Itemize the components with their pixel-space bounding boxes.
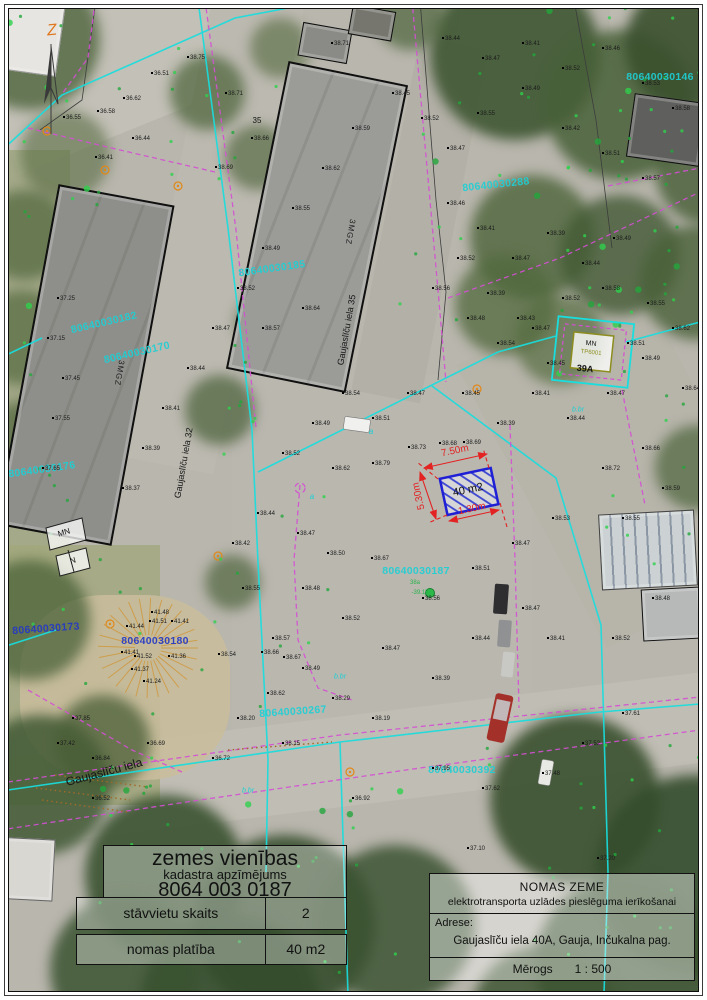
row-label-lease-area: nomas platība: [77, 941, 265, 957]
table-row: stāvvietu skaits 2: [76, 897, 347, 930]
scale-value: 1 : 500: [575, 962, 612, 976]
page-margin: [0, 991, 707, 1000]
lease-info-table: NOMAS ZEME elektrotransporta uzlādes pie…: [429, 873, 695, 981]
survey-lines: [40, 0, 612, 380]
tree-symbol: [426, 589, 435, 598]
row-value-lease-area: 40 m2: [265, 935, 346, 964]
tree-crown-sunburst: [98, 598, 198, 698]
row-value-parking-count: 2: [265, 898, 346, 929]
transformer-station: [552, 316, 634, 388]
address-label: Adrese:: [435, 917, 689, 929]
dark-van: [493, 584, 509, 615]
white-car: [538, 759, 554, 786]
silver-car: [501, 651, 516, 677]
info-title-line1: zemes vienības: [104, 849, 346, 869]
red-bus: [486, 693, 514, 744]
north-arrow: [44, 44, 58, 134]
lease-subtitle: elektrotransporta uzlādes pieslēguma ier…: [432, 896, 692, 908]
utility-marker-boxes: [46, 518, 90, 576]
row-label-parking-count: stāvvietu skaits: [77, 905, 265, 921]
cadastral-info-table: zemes vienības kadastra apzīmējums 8064 …: [76, 845, 347, 965]
lease-table-header: NOMAS ZEME elektrotransporta uzlādes pie…: [430, 874, 694, 914]
page-margin: [0, 0, 9, 1000]
boundary-lines-magenta: [0, 0, 700, 830]
scale-label: Mērogs: [513, 962, 553, 976]
gray-car: [497, 620, 512, 648]
slope-symbol-rows: [36, 742, 332, 812]
manhole-symbols: [43, 127, 481, 776]
address-value: Gaujaslīču iela 40A, Gauja, Inčukalna pa…: [435, 935, 689, 947]
table-row: nomas platība 40 m2: [76, 934, 347, 965]
lease-title: NOMAS ZEME: [432, 880, 692, 894]
white-van: [343, 416, 371, 432]
info-table-title-box: zemes vienības kadastra apzīmējums 8064 …: [103, 845, 347, 898]
cadastral-map: 40 m2 7.50m 5.30m 1.30m 8064003018580640…: [0, 0, 707, 1000]
vehicles: [343, 416, 554, 786]
scale-row: Mērogs 1 : 500: [430, 958, 694, 980]
lease-address-section: Adrese: Gaujaslīču iela 40A, Gauja, Inču…: [430, 914, 694, 958]
page-margin: [698, 0, 707, 1000]
lease-parcel-rect: [440, 468, 499, 515]
page-margin: [0, 0, 707, 9]
